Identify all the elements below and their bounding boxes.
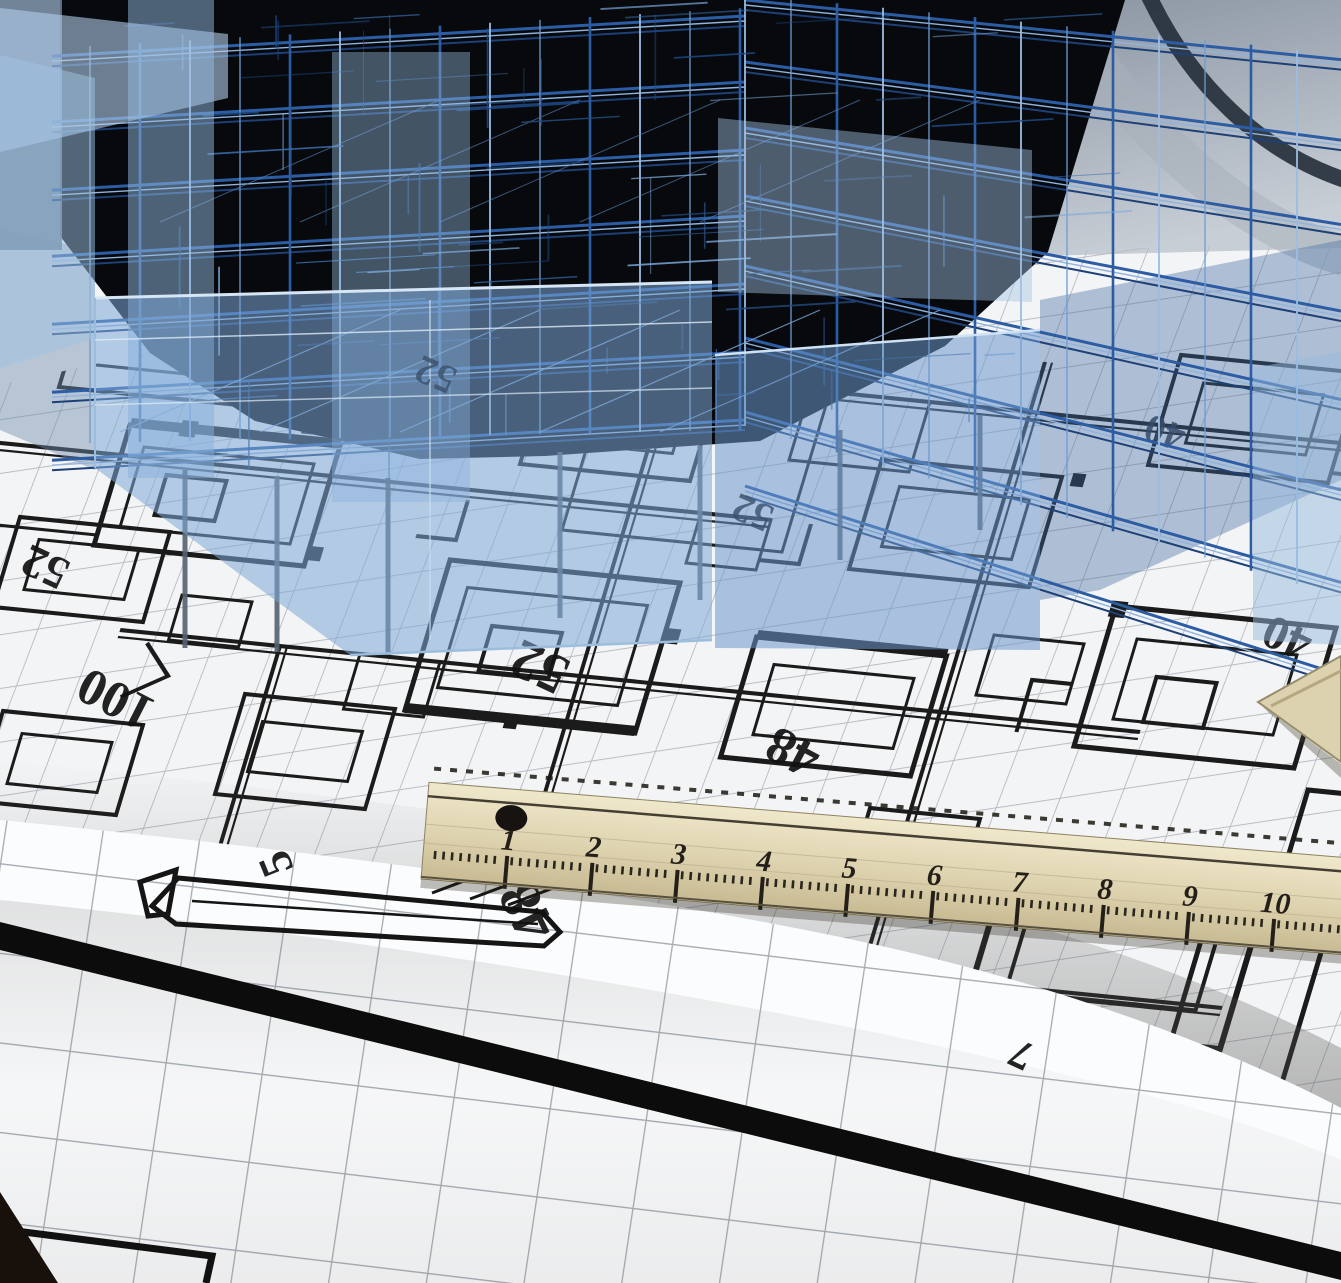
glass-box-right xyxy=(715,330,1040,650)
ruler-number-6: 6 xyxy=(926,858,944,892)
glass-panel xyxy=(718,118,1032,302)
ruler-number-1: 1 xyxy=(500,823,518,857)
glass-panel xyxy=(0,55,95,368)
ruler-number-3: 3 xyxy=(669,837,688,871)
ruler-number-10: 10 xyxy=(1259,886,1292,921)
ruler-number-2: 2 xyxy=(584,830,603,864)
ruler-number-9: 9 xyxy=(1181,879,1199,913)
ruler-number-8: 8 xyxy=(1096,872,1114,906)
ruler-number-4: 4 xyxy=(754,844,773,878)
architectural-blueprint-photo: 5210052484040525254871234567891011 xyxy=(0,0,1341,1283)
glass-box-far-right xyxy=(1253,352,1341,645)
ruler-number-5: 5 xyxy=(841,851,859,885)
blueprint-scene-canvas: 5210052484040525254871234567891011 xyxy=(0,0,1341,1283)
